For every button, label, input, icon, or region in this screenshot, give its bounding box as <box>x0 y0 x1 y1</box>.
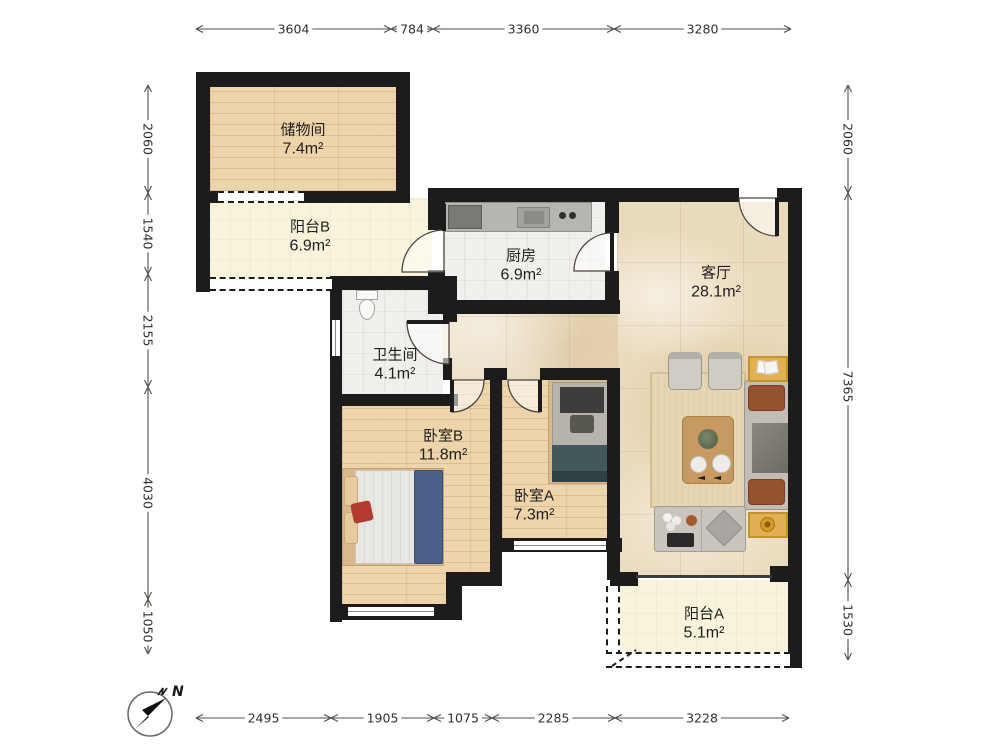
toilet-bowl <box>359 299 375 320</box>
desk-chair <box>570 415 594 433</box>
room-name: 储物间 <box>280 122 325 140</box>
dashed-balcony-edge <box>606 586 620 656</box>
svg-text:2495: 2495 <box>248 711 280 726</box>
sofa <box>744 380 790 510</box>
armchair <box>708 352 742 390</box>
wall-segment <box>605 202 619 233</box>
sink <box>517 207 550 228</box>
gold-bowl <box>760 517 775 532</box>
pouf <box>712 454 731 473</box>
wall-segment <box>490 374 502 586</box>
svg-text:1905: 1905 <box>367 711 399 726</box>
room-label-bedroom-a: 卧室A 7.3m² <box>514 488 555 527</box>
room-area: 28.1m² <box>691 283 741 304</box>
dashed-balcony-edge <box>210 277 332 291</box>
sofa-pillow <box>706 510 743 547</box>
svg-text:3360: 3360 <box>508 22 540 37</box>
room-name: 卧室A <box>514 488 555 506</box>
stove-burner <box>559 212 566 219</box>
fridge <box>448 205 482 229</box>
svg-text:1050: 1050 <box>141 611 156 643</box>
dashed-window <box>218 191 304 203</box>
svg-text:3280: 3280 <box>687 22 719 37</box>
flowers <box>663 513 672 522</box>
room-label-bathroom: 卫生间 4.1m² <box>372 347 417 386</box>
table-decor <box>713 476 721 480</box>
room-label-living: 客厅 28.1m² <box>691 265 741 304</box>
floor-plan: N 36047843360328024951905107522853228206… <box>0 0 1000 750</box>
sink-basin <box>524 211 544 224</box>
room-name: 卫生间 <box>372 347 417 365</box>
svg-text:4030: 4030 <box>141 477 156 509</box>
sofa-throw <box>752 423 790 473</box>
coffee-table <box>682 416 734 484</box>
kitchen-counter <box>445 202 592 232</box>
wall-segment <box>443 358 452 380</box>
red-pillow <box>350 500 374 524</box>
room-area: 6.9m² <box>290 237 331 258</box>
svg-text:2285: 2285 <box>538 711 570 726</box>
sofa-seam <box>701 509 702 551</box>
room-area: 7.4m² <box>280 140 325 161</box>
single-bed <box>548 378 614 484</box>
window <box>514 539 606 551</box>
papers <box>763 360 779 375</box>
sofa-pillow <box>748 385 785 411</box>
balcony-divider-line <box>636 575 772 578</box>
plant <box>698 429 718 449</box>
room-area: 6.9m² <box>501 266 542 287</box>
room-label-balcony-b: 阳台B 6.9m² <box>290 219 331 258</box>
room-name: 阳台B <box>290 219 331 237</box>
svg-text:7365: 7365 <box>841 371 856 403</box>
room-area: 5.1m² <box>684 624 725 645</box>
room-area: 7.3m² <box>514 506 555 527</box>
svg-text:784: 784 <box>400 22 424 37</box>
table-decor <box>697 476 705 480</box>
svg-text:2060: 2060 <box>141 123 156 155</box>
svg-text:1075: 1075 <box>447 711 479 726</box>
room-label-balcony-a: 阳台A 5.1m² <box>684 606 725 645</box>
wall-segment <box>196 72 410 87</box>
wall-segment <box>428 188 739 202</box>
sofa-pillow <box>748 479 785 505</box>
room-name: 卧室B <box>419 428 468 446</box>
wall-segment <box>446 572 502 586</box>
room-label-storage: 储物间 7.4m² <box>280 122 325 161</box>
svg-text:1540: 1540 <box>141 218 156 250</box>
svg-text:2060: 2060 <box>841 123 856 155</box>
double-bed <box>342 468 444 566</box>
pillow <box>344 476 358 506</box>
wall-segment <box>788 582 802 668</box>
room-label-bedroom-b: 卧室B 11.8m² <box>419 428 468 467</box>
svg-text:3228: 3228 <box>686 711 718 726</box>
bowl <box>686 515 697 526</box>
wall-segment <box>610 572 638 586</box>
svg-text:3604: 3604 <box>278 22 310 37</box>
armchair <box>668 352 702 390</box>
blanket <box>414 470 443 564</box>
wall-segment <box>443 276 457 322</box>
desk <box>560 387 604 413</box>
toilet <box>356 290 380 322</box>
wall-segment <box>330 276 455 290</box>
room-area: 11.8m² <box>419 446 468 467</box>
room-name: 阳台A <box>684 606 725 624</box>
compass-icon: N <box>128 684 184 736</box>
tray <box>667 533 694 547</box>
teal-blanket-edge <box>552 471 610 482</box>
side-table <box>748 356 788 382</box>
floor-bedroom-b <box>342 574 446 606</box>
wall-segment <box>196 72 210 292</box>
room-name: 厨房 <box>501 248 542 266</box>
room-name: 客厅 <box>691 265 741 283</box>
pouf <box>690 456 707 473</box>
svg-text:2155: 2155 <box>141 315 156 347</box>
window <box>348 605 434 619</box>
svg-text:1530: 1530 <box>841 604 856 636</box>
stove-burner <box>569 212 576 219</box>
wall-segment <box>330 394 458 406</box>
room-label-kitchen: 厨房 6.9m² <box>501 248 542 287</box>
teal-blanket <box>552 445 610 473</box>
side-table <box>748 512 788 538</box>
wall-segment <box>788 188 802 582</box>
sofa <box>654 506 746 552</box>
wall-segment <box>770 566 788 582</box>
room-area: 4.1m² <box>372 365 417 386</box>
dashed-balcony-edge <box>606 652 790 668</box>
window <box>330 320 342 356</box>
wall-segment <box>607 368 620 580</box>
north-label: N <box>172 684 184 700</box>
wall-segment <box>396 72 410 203</box>
